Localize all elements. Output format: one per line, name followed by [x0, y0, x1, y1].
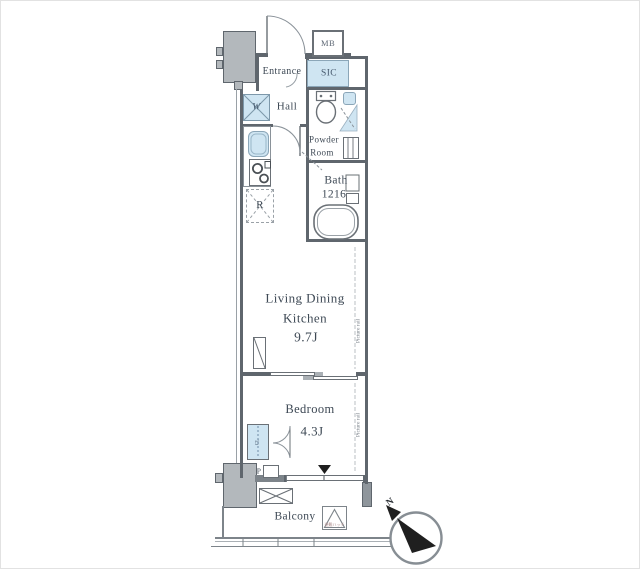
powder-door-dashed [341, 108, 355, 129]
toilet-bowl [317, 101, 336, 123]
balcony-wall [222, 506, 224, 539]
kitchen-sink [248, 131, 269, 157]
wash-basin [343, 92, 356, 105]
ldk-door-swing-arc [273, 126, 300, 153]
sliding-door-panel [270, 372, 315, 376]
stove [249, 159, 271, 186]
wall-segment [240, 372, 271, 376]
bathtub [314, 205, 358, 239]
wall-segment [356, 372, 368, 376]
balcony-railing [211, 546, 393, 547]
label-refrigerator: R [256, 201, 263, 212]
compass-needle [397, 518, 436, 553]
label-picture-rail-ldk: Picture rail [356, 319, 362, 343]
toilet-tank-button [320, 95, 323, 98]
label-ldk-size: 9.7J [294, 330, 318, 344]
label-bedroom: Bedroom [285, 403, 334, 416]
label-closet: CL [256, 439, 261, 445]
label-powder-room: Powder [309, 136, 339, 145]
wall-segment [236, 89, 237, 463]
label-mb: MB [321, 39, 335, 48]
pipe-box [263, 465, 279, 478]
wall-segment [343, 53, 351, 57]
wall-endcap [362, 482, 372, 507]
pillar-top-tab [216, 60, 223, 69]
wall-segment [306, 160, 368, 163]
compass-needle-tip [386, 505, 401, 521]
wall-segment [300, 124, 308, 127]
bathtub-inner-line [318, 209, 355, 236]
label-sic: SIC [321, 69, 337, 79]
window-cap [363, 475, 365, 482]
closet-door-arc [273, 426, 290, 443]
window-line [285, 475, 365, 476]
label-bath: Bath [324, 175, 347, 187]
compass-circle [391, 513, 442, 564]
entry-direction-marker [318, 465, 331, 474]
vanity-cabinet [343, 137, 359, 159]
window-line [285, 480, 365, 481]
closet-door-arc [273, 443, 290, 458]
pillar-top-tab [216, 47, 223, 56]
wall-segment [365, 56, 368, 484]
pillar-top [223, 31, 256, 83]
window-cap [284, 475, 286, 482]
label-bedroom-size: 4.3J [301, 425, 324, 438]
sliding-door-panel [313, 376, 358, 380]
balcony-railing [215, 537, 392, 539]
label-powder-room: Room [310, 149, 334, 158]
label-bath-size: 1216 [322, 189, 347, 201]
label-ldk: Kitchen [283, 312, 327, 325]
toilet-tank-button [330, 95, 333, 98]
label-entrance: Entrance [263, 67, 302, 77]
toilet-tank [317, 92, 336, 101]
powder-corner-fill [340, 105, 357, 131]
label-balcony: Balcony [274, 511, 315, 523]
balcony-vent [259, 488, 293, 504]
label-evacuation-hatch: 避難ハッチ [325, 523, 345, 527]
ldk-panel [253, 337, 266, 369]
bath-counter [346, 175, 359, 191]
label-compass-north: N [385, 497, 396, 509]
label-washer: W [252, 103, 260, 113]
label-ldk: Living Dining [265, 292, 344, 305]
wall-segment [306, 239, 368, 242]
label-pipe: P [257, 467, 262, 475]
label-picture-rail-bedroom: Picture rail [356, 413, 362, 437]
wall-segment [256, 53, 259, 91]
front-door-swing-arc [267, 16, 305, 54]
wall-segment [306, 87, 368, 90]
balcony-railing [215, 541, 392, 542]
bath-shelf [347, 194, 359, 204]
label-hall: Hall [277, 102, 298, 113]
floor-plan: MB Entrance SIC Hall W Powder Room Bath … [0, 0, 640, 569]
pillar-bottom-tab [215, 473, 223, 483]
